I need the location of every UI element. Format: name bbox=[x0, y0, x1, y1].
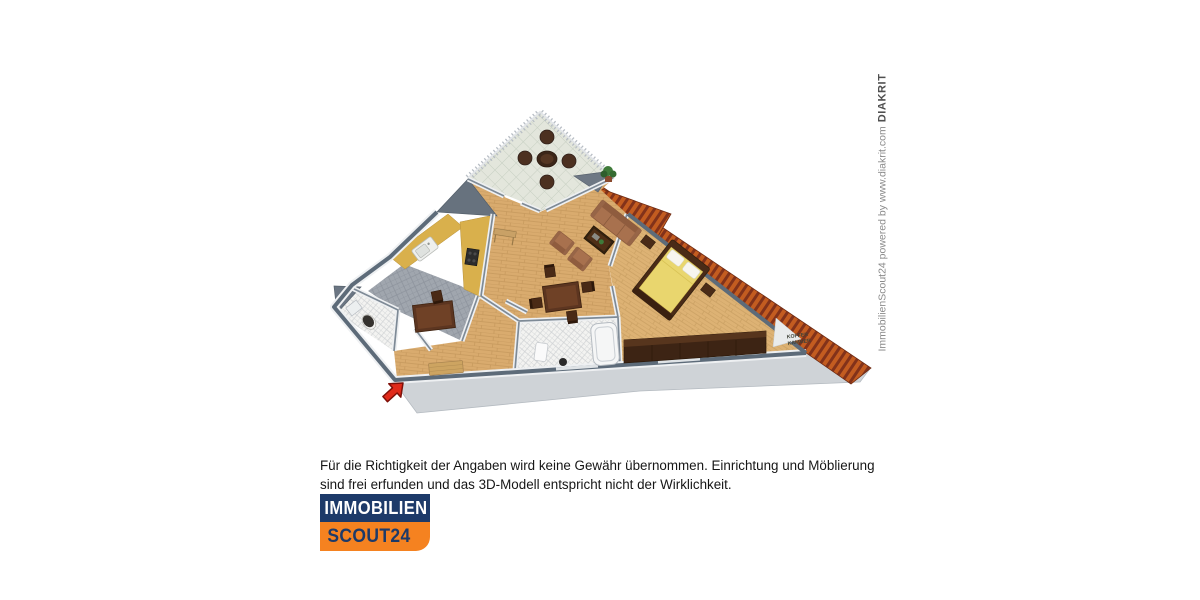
disclaimer-text: Für die Richtigkeit der Angaben wird kei… bbox=[320, 457, 875, 494]
bathtub bbox=[590, 322, 620, 366]
shower-drain bbox=[559, 358, 567, 366]
watermark-brand: DIAKRIT bbox=[877, 73, 889, 122]
hall-bench bbox=[429, 361, 464, 376]
immobilienscout24-logo: IMMOBILIEN SCOUT24 bbox=[320, 494, 430, 551]
dining-chair bbox=[529, 297, 543, 309]
kitchen-table bbox=[412, 301, 455, 333]
stove bbox=[465, 248, 479, 266]
logo-immobilien-text: IMMOBILIEN bbox=[324, 494, 425, 522]
logo-scout24-text: SCOUT24 bbox=[320, 522, 421, 551]
dining-table bbox=[542, 282, 581, 313]
diakrit-watermark: ImmobilienScout24 powered by www.diakrit… bbox=[877, 68, 894, 358]
page: KOFFER KAMMER bbox=[0, 0, 1200, 600]
watermark-text: ImmobilienScout24 powered by www.diakrit… bbox=[877, 126, 889, 351]
kitchen-chair bbox=[431, 290, 443, 304]
disclaimer-line-1: Für die Richtigkeit der Angaben wird kei… bbox=[320, 457, 875, 476]
dining-chair bbox=[566, 310, 578, 324]
entrance-arrow bbox=[383, 383, 403, 402]
logo-scout24-bar: SCOUT24 bbox=[320, 522, 430, 551]
dining-chair bbox=[581, 281, 595, 293]
dining-chair bbox=[544, 264, 556, 278]
bathroom-sink bbox=[534, 342, 548, 361]
logo-immobilien-bar: IMMOBILIEN bbox=[320, 494, 430, 522]
floorplan-3d-view: KOFFER KAMMER bbox=[320, 95, 880, 430]
disclaimer-line-2: sind frei erfunden und das 3D-Modell ent… bbox=[320, 476, 875, 495]
